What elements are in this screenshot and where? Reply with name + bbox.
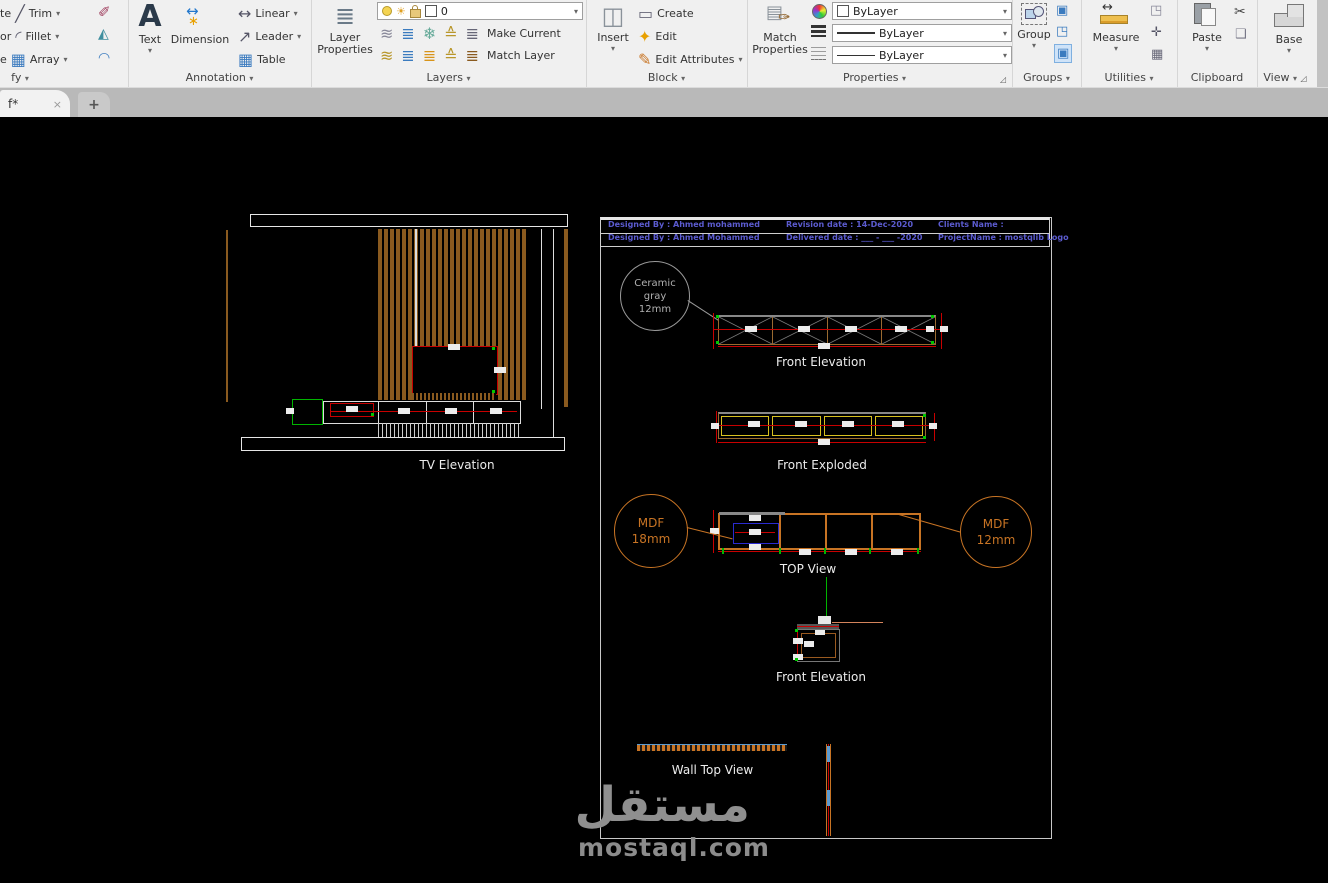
dimension-text [490,408,502,414]
dimension-text [748,421,760,427]
text-label: Text [130,34,170,46]
layer-on-icon[interactable] [382,6,392,16]
point-icon[interactable]: ✛ [1151,25,1162,40]
dimension-text [398,408,410,414]
linetype-select[interactable]: ByLayer ▾ [832,46,1012,64]
dimension-text [494,367,506,373]
trim-icon: ╱ [15,4,25,23]
trim-label: Trim [29,7,52,20]
color-swatch [837,5,849,17]
linetype-value: ByLayer [879,49,924,62]
chevron-down-icon: ▾ [1090,44,1142,53]
front-elevation-2-label: Front Elevation [756,670,886,684]
grip-point [931,341,934,344]
grip-point [492,347,495,350]
watermark-arabic: مستقل [575,777,750,833]
tick [869,548,871,554]
fillet-icon: ◜ [15,27,21,46]
chevron-down-icon: ▾ [1293,74,1297,83]
tick [779,548,781,554]
chevron-down-icon: ▾ [1268,46,1310,55]
layer-unlock-icon[interactable] [410,9,421,18]
grip-point [795,658,798,661]
side-cabinet-box [292,399,323,425]
dimension-text [895,326,907,332]
dimension-text [795,421,807,427]
ribbon: te ╱ Trim ▾ or ◜ Fillet ▾ e ▦ Array ▾ ✐ … [0,0,1328,87]
chevron-down-icon[interactable]: ▾ [56,9,60,18]
floor-bar [241,437,565,451]
clients-name: Clients Name : [938,220,1004,229]
layers-panel-label[interactable]: Layers ▾ [311,71,586,84]
drawing-tab-title: f* [8,97,18,111]
insert-icon: ◫ [592,0,634,32]
chevron-down-icon: ▾ [249,74,253,83]
grip-point [716,315,719,318]
lineweight-icon[interactable] [811,25,826,37]
plus-icon: + [88,97,100,113]
wall-line [553,229,554,437]
dimension-button[interactable]: ↔ ∗ Dimension [168,0,232,46]
color-wheel-icon[interactable] [812,4,827,19]
drawing-canvas[interactable]: TV Elevation Designed By : Ahmed mohamme… [0,117,1328,883]
left-wood-trim [226,230,228,402]
clipboard-panel-label[interactable]: Clipboard [1177,71,1257,84]
grip-point [931,315,934,318]
front-elevation-label: Front Elevation [756,355,886,369]
match-properties-button[interactable]: ▤ ✑ Match Properties [752,0,808,56]
table-label: Table [257,53,285,66]
create-block-button[interactable]: ▭ Create [638,4,694,23]
match-layer-icon: ≣ [466,46,479,65]
chevron-down-icon[interactable]: ▾ [294,9,298,18]
dimension-text [445,408,457,414]
utilities-panel-label[interactable]: Utilities ▾ [1081,71,1177,84]
dimension-text [804,641,814,647]
layer-thaw-icon[interactable]: ☀ [396,5,406,18]
chevron-down-icon: ▾ [681,74,685,83]
layer-properties-button[interactable]: ≣ Layer Properties [316,0,374,56]
fillet-button[interactable]: or ◜ Fillet ▾ [0,27,59,46]
linear-button[interactable]: ↔ Linear ▾ [238,4,298,23]
mdf18-callout: MDF 18mm [614,494,688,568]
chevron-down-icon[interactable]: ▾ [55,32,59,41]
wall-line [832,622,883,623]
grip-point [371,413,374,416]
cropped-label: e [0,53,7,66]
chevron-down-icon[interactable]: ▾ [739,55,743,64]
measure-icon: ↔ [1090,0,1142,32]
dimension-text [799,549,811,555]
chevron-down-icon: ▾ [1149,74,1153,83]
dimension-text [749,515,761,521]
watermark-latin: mostaql.com [578,833,748,862]
tv-screen [412,346,498,395]
dimension-text [818,439,830,445]
chevron-down-icon: ▾ [466,74,470,83]
array-icon: ▦ [11,50,26,69]
cabinet-dim-line [330,411,517,412]
layer-lock-icon[interactable]: ≙ [444,24,457,43]
quick-calc-icon[interactable]: ▦ [1151,47,1163,62]
linetype-sample [837,55,875,56]
drawing-tab[interactable]: f* × [0,90,70,118]
dimension-text [448,344,460,350]
match-properties-icon: ▤ ✑ [752,0,808,32]
create-block-label: Create [657,7,694,20]
layer-off-icon[interactable]: ≋ [380,24,393,43]
ungroup-icon[interactable]: ▣ [1056,3,1068,18]
layer-unlock-all-icon[interactable]: ≙ [444,46,457,65]
layer-tools-row-2: ≋ ≣ ≣ ≙ ≣ Match Layer [380,46,555,65]
edit-attributes-icon: ✎ [638,50,651,69]
grip-point [923,436,926,439]
make-current-button[interactable]: Make Current [487,27,561,40]
cropped-label: or [0,30,11,43]
designed-by-2: Designed By : Ahmed Mohammed [608,233,760,242]
table-icon: ▦ [238,50,253,69]
dimension-text [845,549,857,555]
wall-line [541,229,542,409]
layer-thaw-all-icon[interactable]: ≣ [423,46,436,65]
insert-label: Insert [592,32,634,44]
dimension-text [892,421,904,427]
layer-select[interactable]: ☀ 0 ▾ [377,2,583,20]
layer-properties-label-2: Properties [316,44,374,56]
match-layer-button[interactable]: Match Layer [487,49,555,62]
dimension-text [940,326,948,332]
edit-block-button[interactable]: ✦ Edit [638,27,677,46]
mdf12-callout: MDF 12mm [960,496,1032,568]
annotation-panel-label[interactable]: Annotation ▾ [128,71,311,84]
base-label: Base [1268,34,1310,46]
array-label: Array [30,53,60,66]
dimension-text [798,326,810,332]
layer-properties-icon: ≣ [316,0,374,32]
dimension-text [818,343,830,349]
id-point-icon[interactable]: ◳ [1150,3,1162,18]
delivered-date: Delivered date : ___ - ___ -2020 [786,233,922,242]
dialog-launcher-icon: ◿ [1300,74,1306,83]
group-icon [1016,0,1052,29]
wall-section-vertical [826,744,831,836]
match-properties-label-2: Properties [752,44,808,56]
explode-icon[interactable]: ◭ [98,26,109,42]
insert-button[interactable]: ◫ Insert ▾ [592,0,634,53]
ceiling-bar [250,214,568,227]
chevron-down-icon[interactable]: ▾ [1003,29,1007,38]
tv-shelf-hatch [412,393,496,400]
copy-icon[interactable]: ❑ [1235,27,1247,42]
autocad-window: te ╱ Trim ▾ or ◜ Fillet ▾ e ▦ Array ▾ ✐ … [0,0,1328,883]
paste-icon [1186,0,1228,32]
lineweight-select[interactable]: ByLayer ▾ [832,24,1012,42]
ceramic-callout: Ceramic gray 12mm [620,261,690,331]
slat-gap-line [415,229,417,346]
offset-icon[interactable]: ◠ [98,50,110,66]
cropped-label: te [0,7,11,20]
wall-top-view-label: Wall Top View [650,763,775,777]
new-tab-button[interactable]: + [78,92,110,118]
grip-point [795,629,798,632]
layer-freeze-icon[interactable]: ❄ [423,24,436,43]
erase-icon[interactable]: ✐ [98,3,111,21]
properties-panel-label[interactable]: Properties ▾ [747,71,1002,84]
dimension-text [815,630,825,635]
chevron-down-icon[interactable]: ▾ [1003,51,1007,60]
grip-point [716,341,719,344]
tick [917,548,919,554]
dimension-text [891,549,903,555]
leader-button[interactable]: ↗ Leader ▾ [238,27,301,46]
measure-label: Measure [1090,32,1142,44]
chevron-down-icon[interactable]: ▾ [297,32,301,41]
dimension-text [845,326,857,332]
dimension-text [749,544,761,550]
make-current-icon: ≣ [466,24,479,43]
edit-block-label: Edit [655,30,676,43]
layer-tools-row-1: ≋ ≣ ❄ ≙ ≣ Make Current [380,24,561,43]
project-name: ProjectName : mostqlib Logo [938,233,1069,242]
tick [722,548,724,554]
chevron-down-icon[interactable]: ▾ [1003,7,1007,16]
dimension-text [745,326,757,332]
view-panel-label[interactable]: View ▾ ◿ [1257,71,1313,84]
paste-label: Paste [1186,32,1228,44]
base-button[interactable]: Base ▾ [1268,0,1310,55]
array-button[interactable]: e ▦ Array ▾ [0,50,68,69]
tv-elevation-label: TV Elevation [392,458,522,472]
dimension-text [346,406,358,412]
dimension-text [749,529,761,535]
dimension-text [926,326,934,332]
fillet-label: Fillet [25,30,51,43]
dimension-text [286,408,294,414]
block-panel-label[interactable]: Block ▾ [586,71,747,84]
dim-line [713,313,714,349]
chevron-down-icon: ▾ [592,44,634,53]
current-layer-name: 0 [441,5,448,18]
dim-line [797,626,839,627]
dimension-text [711,423,719,429]
linear-icon: ↔ [238,4,251,23]
right-wood-trim [564,229,568,407]
file-tab-bar: f* × + [0,87,1328,118]
table-button[interactable]: ▦ Table [238,50,286,69]
chevron-down-icon: ▾ [25,74,29,83]
grip-point [923,414,926,417]
plinth-hatch [378,423,520,437]
text-icon: A [130,0,170,34]
layer-turn-on-icon[interactable]: ≋ [380,46,393,65]
linetype-icon[interactable] [811,47,826,60]
leader-label: Leader [255,30,293,43]
linear-label: Linear [255,7,289,20]
leader-icon: ↗ [238,27,251,46]
group-label: Group [1016,29,1052,41]
edit-attributes-label: Edit Attributes [655,53,734,66]
create-block-icon: ▭ [638,4,653,23]
edit-attributes-button[interactable]: ✎ Edit Attributes ▾ [638,50,743,69]
chevron-down-icon: ▾ [1066,74,1070,83]
group-selection-toggle-icon[interactable]: ▣ [1054,44,1072,63]
designed-by-1: Designed By : Ahmed mohammed [608,220,760,229]
layer-color-swatch[interactable] [425,5,437,17]
lineweight-sample [837,32,875,34]
object-color-select[interactable]: ByLayer ▾ [832,2,1012,20]
cut-icon[interactable]: ✂ [1234,4,1246,20]
dimension-text [842,421,854,427]
front-exploded-label: Front Exploded [752,458,892,472]
chevron-down-icon: ▾ [1186,44,1228,53]
chevron-down-icon: ▾ [1016,41,1052,50]
trim-button[interactable]: te ╱ Trim ▾ [0,4,60,23]
layer-isolate-icon[interactable]: ≣ [401,24,414,43]
group-edit-icon[interactable]: ◳ [1056,24,1068,39]
dimension-icon: ↔ ∗ [168,0,232,34]
lineweight-value: ByLayer [879,27,924,40]
layer-unisolate-icon[interactable]: ≣ [401,46,414,65]
measure-button[interactable]: ↔ Measure ▾ [1090,0,1142,53]
wall-section-strip [637,744,787,751]
chevron-down-icon: ▾ [130,46,170,55]
ribbon-edge [1317,0,1328,87]
modify-panel-label[interactable]: fy ▾ [0,71,40,84]
close-tab-icon[interactable]: × [53,98,62,111]
base-icon [1268,0,1310,34]
revision-date: Revision date : 14-Dec-2020 [786,220,913,229]
edit-block-icon: ✦ [638,27,651,46]
dialog-launcher-icon[interactable]: ◿ [1000,75,1006,84]
text-button[interactable]: A Text ▾ [130,0,170,55]
dimension-text [793,638,803,644]
chevron-down-icon[interactable]: ▾ [574,7,578,16]
dimension-label: Dimension [168,34,232,46]
top-view-label: TOP View [768,562,848,576]
object-color-value: ByLayer [853,5,898,18]
paste-button[interactable]: Paste ▾ [1186,0,1228,53]
dimension-text [929,423,937,429]
chevron-down-icon[interactable]: ▾ [64,55,68,64]
groups-panel-label[interactable]: Groups ▾ [1012,71,1081,84]
chevron-down-icon: ▾ [902,74,906,83]
tick [824,548,826,554]
group-button[interactable]: Group ▾ [1016,0,1052,50]
